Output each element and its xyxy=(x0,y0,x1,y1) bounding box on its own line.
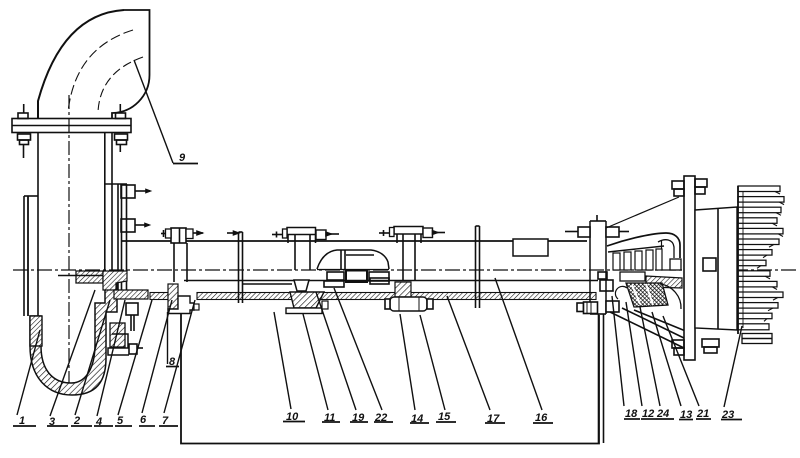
svg-text:18: 18 xyxy=(625,408,638,420)
svg-text:9: 9 xyxy=(179,152,186,164)
svg-text:19: 19 xyxy=(352,412,365,424)
svg-text:2: 2 xyxy=(73,415,80,427)
svg-text:24: 24 xyxy=(656,408,669,420)
svg-text:3: 3 xyxy=(49,416,55,428)
svg-text:15: 15 xyxy=(438,411,451,423)
svg-text:6: 6 xyxy=(140,414,147,426)
svg-text:8: 8 xyxy=(169,356,176,368)
svg-text:12: 12 xyxy=(642,408,654,420)
svg-text:16: 16 xyxy=(535,412,548,424)
svg-text:22: 22 xyxy=(374,412,387,424)
svg-text:1: 1 xyxy=(19,415,25,427)
svg-text:13: 13 xyxy=(680,409,692,421)
svg-text:4: 4 xyxy=(95,416,102,428)
svg-text:11: 11 xyxy=(324,412,335,424)
svg-text:23: 23 xyxy=(721,409,734,421)
svg-text:21: 21 xyxy=(696,408,709,420)
svg-text:7: 7 xyxy=(162,415,169,427)
svg-text:5: 5 xyxy=(117,415,124,427)
svg-text:17: 17 xyxy=(487,413,500,425)
svg-text:10: 10 xyxy=(286,411,299,423)
svg-text:14: 14 xyxy=(411,413,423,425)
